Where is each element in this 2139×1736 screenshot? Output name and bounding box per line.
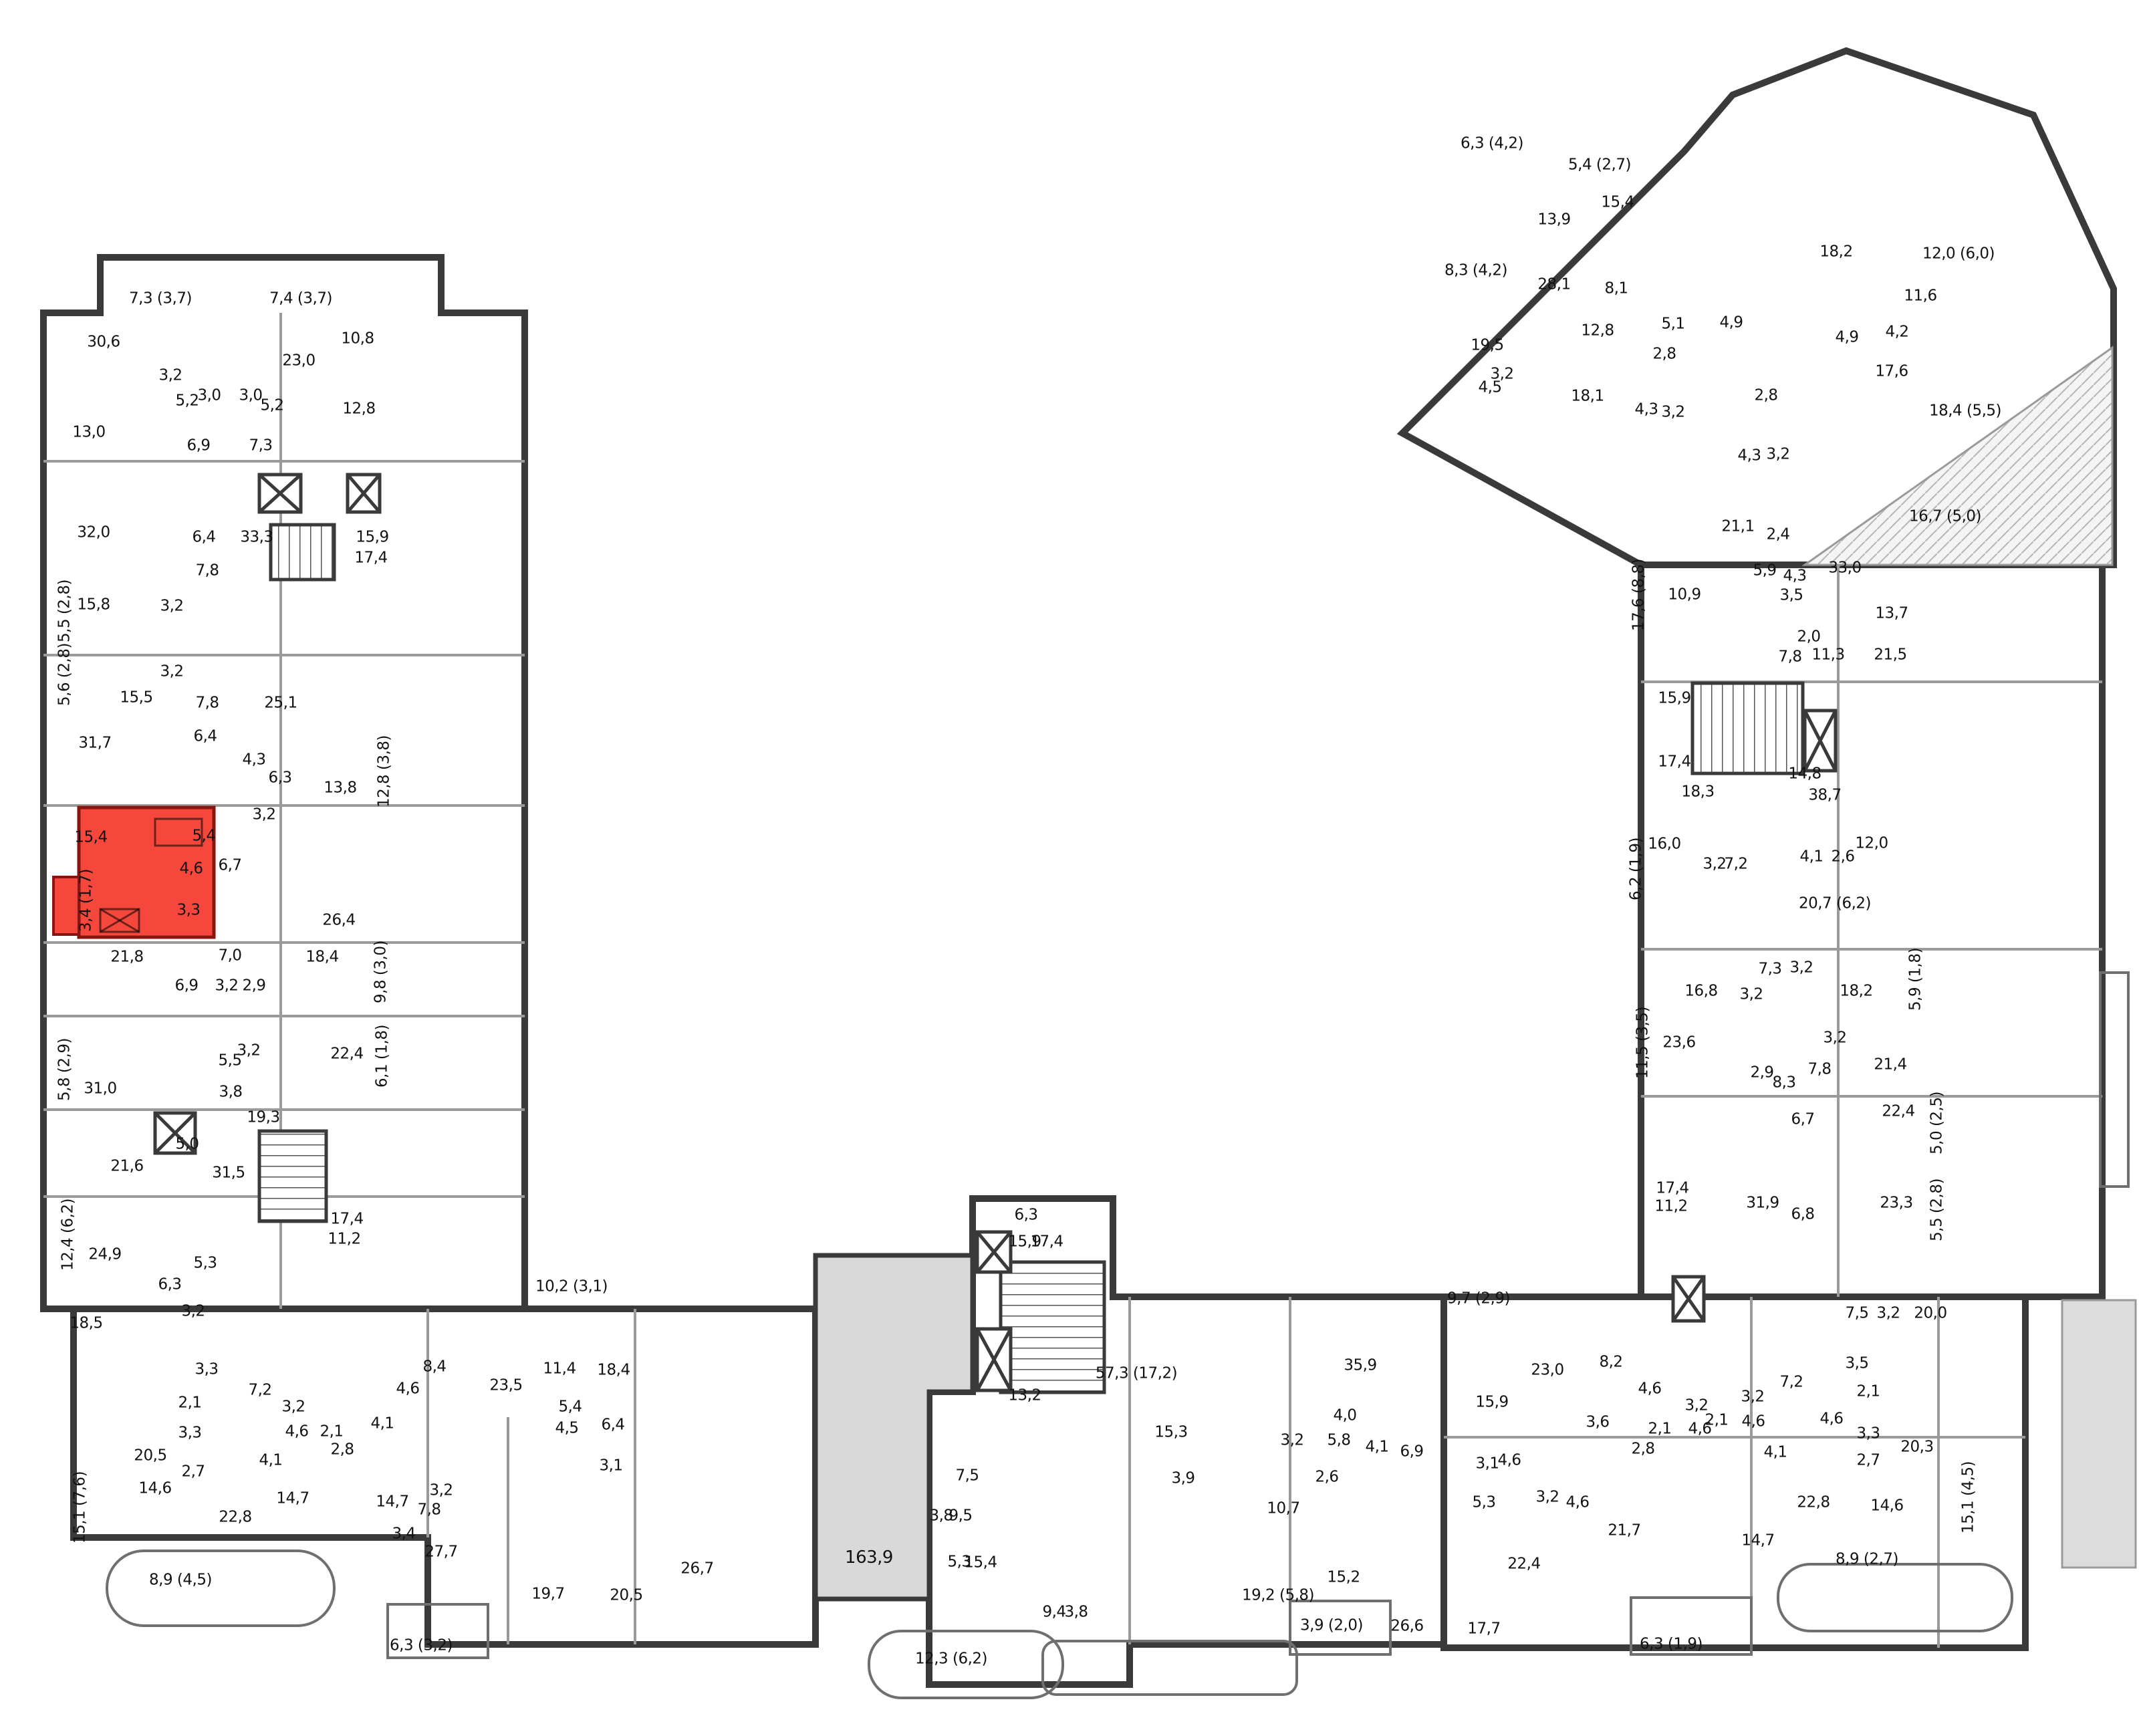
room-area-label: 15,8 [77, 598, 110, 613]
room-area-label: 12,8 (3,8) [377, 735, 392, 808]
room-area-label: 31,0 [84, 1082, 116, 1097]
room-area-label: 7,2 [1779, 1375, 1803, 1390]
room-area-label: 18,4 [597, 1363, 630, 1378]
room-area-label: 4,6 [179, 862, 203, 877]
room-area-label: 23,0 [1531, 1363, 1563, 1378]
room-area-label: 7,3 [1758, 962, 1781, 977]
room-area-label: 31,9 [1746, 1196, 1779, 1211]
room-area-label: 10,9 [1668, 588, 1701, 603]
room-area-label: 12,8 [342, 402, 375, 417]
room-area-label: 3,0 [239, 388, 262, 404]
room-area-label: 3,5 [1845, 1356, 1868, 1372]
room-area-label: 3,6 [1586, 1415, 1609, 1431]
room-area-label: 15,4 [74, 830, 107, 846]
room-area-label: 3,2 [215, 979, 238, 994]
room-area-label: 18,5 [70, 1316, 102, 1332]
room-area-label: 6,4 [192, 530, 215, 545]
room-area-label: 18,2 [1819, 245, 1852, 260]
room-area-label: 3,2 [181, 1304, 205, 1320]
room-area-label: 15,9 [1658, 691, 1690, 707]
room-area-label: 18,4 [305, 950, 338, 965]
room-area-label: 11,3 [1811, 648, 1844, 663]
room-area-label: 4,6 [1638, 1382, 1661, 1397]
room-area-label: 32,0 [77, 525, 110, 541]
room-area-label: 4,9 [1835, 330, 1858, 346]
room-area-label: 21,4 [1874, 1058, 1906, 1073]
room-area-label: 6,3 [268, 771, 291, 786]
room-area-label: 20,5 [610, 1588, 642, 1604]
room-area-label: 6,3 [158, 1277, 181, 1293]
room-area-label: 3,2 [1739, 987, 1763, 1003]
room-area-label: 15,1 (7,6) [73, 1471, 88, 1543]
room-area-label: 13,8 [324, 781, 356, 796]
room-area-label: 5,9 (1,8) [1908, 948, 1924, 1011]
room-area-label: 2,8 [330, 1443, 354, 1458]
room-area-label: 3,0 [197, 388, 221, 404]
room-area-label: 35,9 [1344, 1358, 1376, 1374]
room-area-label: 4,1 [1763, 1445, 1787, 1461]
room-area-label: 27,7 [424, 1545, 457, 1560]
room-area-label: 4,1 [1799, 850, 1823, 865]
room-area-label: 10,2 (3,1) [535, 1279, 608, 1295]
room-area-label: 26,4 [322, 913, 355, 928]
room-area-label: 4,9 [1719, 316, 1743, 331]
room-area-label: 7,5 [1845, 1306, 1868, 1322]
room-area-label: 23,5 [489, 1378, 522, 1394]
room-area-label: 12,8 [1581, 324, 1614, 339]
room-area-label: 26,6 [1390, 1619, 1423, 1634]
room-area-label: 17,4 [1656, 1181, 1688, 1197]
room-area-label: 4,1 [370, 1416, 394, 1432]
room-area-label: 31,7 [78, 736, 111, 751]
room-area-label: 6,3 (3,2) [390, 1638, 453, 1654]
room-area-label: 2,9 [242, 979, 265, 994]
room-area-label: 11,2 [328, 1232, 360, 1247]
room-area-label: 4,6 [285, 1424, 308, 1440]
room-area-label: 23,3 [1880, 1196, 1912, 1211]
room-area-label: 3,2 [158, 368, 182, 384]
room-area-label: 14,8 [1788, 767, 1821, 782]
room-area-label: 19,5 [1471, 338, 1503, 354]
room-area-label: 21,8 [110, 950, 143, 965]
room-area-label: 16,7 (5,0) [1909, 509, 1981, 525]
room-area-label: 4,0 [1333, 1408, 1356, 1424]
room-area-label: 3,1 [1475, 1457, 1499, 1472]
room-area-label: 9,4 [1042, 1605, 1065, 1620]
room-area-label: 15,4 [1601, 195, 1634, 211]
room-area-label: 4,6 [1497, 1453, 1521, 1469]
room-area-label: 23,6 [1662, 1035, 1695, 1051]
room-area-label: 8,9 (4,5) [149, 1573, 212, 1588]
room-area-label: 4,3 [242, 753, 265, 768]
room-area-label: 6,3 (1,9) [1640, 1637, 1703, 1652]
room-area-label: 3,2 [252, 808, 275, 823]
room-area-label: 24,9 [88, 1247, 121, 1263]
room-area-label: 15,4 [964, 1556, 997, 1571]
room-area-label: 11,5 (3,5) [1636, 1007, 1651, 1079]
room-area-label: 17,4 [330, 1212, 363, 1227]
room-area-label: 3,2 [1741, 1390, 1764, 1405]
room-area-label: 3,2 [281, 1400, 305, 1415]
room-area-label: 13,9 [1537, 213, 1570, 228]
room-area-label: 13,7 [1875, 606, 1908, 622]
room-area-label: 5,9 [1753, 564, 1776, 579]
room-area-label: 4,1 [1365, 1440, 1388, 1455]
room-area-label: 16,0 [1648, 837, 1680, 852]
room-area-label: 6,9 [1400, 1445, 1423, 1460]
room-area-label: 10,7 [1267, 1501, 1299, 1517]
room-area-label: 3,9 (2,0) [1300, 1618, 1363, 1634]
room-area-label: 4,2 [1885, 325, 1908, 340]
room-area-label: 20,7 (6,2) [1799, 896, 1871, 912]
room-area-label: 12,3 (6,2) [915, 1652, 987, 1667]
room-area-label: 18,3 [1681, 785, 1714, 800]
room-area-label: 2,9 [1750, 1066, 1773, 1081]
room-area-label: 19,3 [247, 1110, 279, 1126]
room-area-label: 12,0 (6,0) [1922, 247, 1995, 262]
room-area-label: 22,4 [1882, 1104, 1914, 1120]
room-area-label: 2,1 [320, 1424, 343, 1440]
room-area-label: 4,6 [1565, 1495, 1589, 1511]
room-area-label: 33,3 [240, 530, 273, 545]
room-area-label: 7,8 [417, 1503, 441, 1518]
room-area-label: 22,4 [1507, 1557, 1540, 1572]
room-area-label: 2,8 [1631, 1442, 1654, 1457]
room-area-label: 18,4 (5,5) [1929, 404, 2001, 419]
room-area-label: 25,1 [264, 696, 297, 711]
room-area-label: 3,2 [1280, 1433, 1303, 1449]
room-area-label: 5,0 (2,5) [1930, 1092, 1945, 1154]
room-area-label: 2,0 [1797, 630, 1820, 645]
room-area-label: 8,1 [1604, 281, 1628, 297]
room-area-label: 3,5 [1779, 588, 1803, 604]
room-area-label: 19,7 [531, 1587, 564, 1602]
room-area-label: 7,2 [1724, 857, 1747, 872]
room-area-label: 8,9 (2,7) [1836, 1552, 1898, 1568]
room-area-label: 3,8 [219, 1085, 242, 1100]
room-area-label: 5,8 (2,9) [57, 1038, 73, 1101]
room-area-label: 21,6 [110, 1159, 143, 1174]
room-area-label: 2,7 [1856, 1453, 1880, 1469]
room-area-label: 28,1 [1537, 277, 1570, 293]
room-area-label: 9,8 (3,0) [374, 941, 389, 1003]
room-area-label: 7,4 (3,7) [269, 291, 332, 307]
room-area-label: 11,2 [1654, 1199, 1687, 1215]
room-area-label: 14,6 [138, 1481, 171, 1497]
room-area-label: 3,2 [1823, 1031, 1846, 1046]
room-area-label: 9,7 (2,9) [1447, 1291, 1510, 1307]
room-area-label: 38,7 [1808, 788, 1841, 803]
room-area-label: 6,3 (4,2) [1461, 136, 1523, 152]
floor-plan: 7,3 (3,7)7,4 (3,7)30,63,25,23,03,05,223,… [0, 0, 2139, 1736]
room-area-label: 17,4 [1030, 1235, 1063, 1250]
room-area-label: 23,0 [282, 354, 315, 369]
room-area-label: 6,2 (1,9) [1629, 838, 1644, 900]
room-area-label: 8,2 [1599, 1355, 1622, 1370]
room-area-label: 5,1 [1661, 317, 1684, 332]
room-area-label: 7,3 [249, 439, 272, 454]
room-area-label: 3,9 [1171, 1471, 1194, 1487]
room-area-label: 7,2 [248, 1383, 271, 1398]
room-area-label: 3,3 [195, 1362, 218, 1378]
room-area-label: 13,0 [72, 425, 105, 441]
room-area-label: 163,9 [845, 1549, 893, 1566]
room-area-label: 10,8 [341, 332, 374, 347]
room-area-label: 3,3 [178, 1426, 201, 1441]
room-area-label: 30,6 [87, 335, 120, 350]
room-area-label: 5,4 [192, 829, 215, 844]
room-area-label: 17,6 (8,8) [1632, 559, 1647, 631]
room-area-label: 15,9 [1475, 1395, 1508, 1410]
room-area-label: 2,6 [1831, 850, 1854, 865]
room-area-label: 17,7 [1467, 1622, 1500, 1637]
room-area-label: 15,5 [120, 691, 152, 706]
room-area-label: 7,3 (3,7) [129, 291, 192, 307]
room-area-label: 4,1 [259, 1453, 282, 1469]
room-area-label: 3,2 [1535, 1490, 1559, 1505]
room-area-label: 14,7 [276, 1491, 309, 1507]
room-area-label: 3,2 [1661, 405, 1684, 420]
room-area-label: 6,3 [1014, 1208, 1037, 1223]
room-area-label: 17,6 [1875, 364, 1908, 380]
room-area-label: 3,1 [599, 1459, 622, 1474]
room-area-label: 6,9 [174, 979, 198, 994]
room-area-label: 4,6 [1819, 1412, 1843, 1427]
room-area-label: 3,2 [1789, 961, 1813, 976]
room-area-label: 5,5 (2,8) [1930, 1179, 1945, 1241]
room-area-label: 8,4 [422, 1360, 446, 1375]
room-area-label: 7,8 [1807, 1062, 1831, 1078]
room-area-label: 5,3 [193, 1256, 217, 1271]
room-area-label: 18,2 [1840, 984, 1872, 999]
room-area-label: 3,2 [1876, 1306, 1900, 1322]
room-area-label: 12,4 (6,2) [61, 1199, 76, 1271]
room-area-label: 4,5 [555, 1421, 578, 1437]
room-area-label: 15,2 [1327, 1570, 1360, 1586]
room-area-label: 7,5 [955, 1469, 979, 1484]
room-area-label: 21,5 [1874, 648, 1906, 663]
room-area-label: 21,7 [1608, 1523, 1640, 1539]
room-area-label: 5,5 (2,8) [57, 580, 73, 642]
room-area-label: 13,2 [1008, 1388, 1041, 1404]
room-area-label: 8,3 [1772, 1076, 1795, 1091]
room-area-label: 6,1 (1,8) [375, 1025, 390, 1088]
room-area-label: 11,6 [1904, 289, 1936, 304]
room-area-label: 31,5 [212, 1166, 245, 1181]
room-area-label: 15,9 [356, 530, 388, 545]
room-area-label: 3,2 [429, 1483, 453, 1499]
room-area-label: 2,1 [1705, 1413, 1728, 1429]
room-area-label: 14,6 [1870, 1499, 1903, 1514]
room-area-label: 2,1 [1856, 1384, 1880, 1400]
room-area-label: 12,0 [1855, 836, 1888, 852]
room-area-label: 4,3 [1737, 449, 1761, 464]
room-area-label: 5,5 [218, 1053, 241, 1069]
room-area-label: 4,3 [1634, 402, 1658, 418]
room-area-label: 21,1 [1721, 519, 1754, 535]
room-area-label: 3,8 [1064, 1605, 1088, 1620]
room-area-label: 20,5 [134, 1449, 166, 1464]
room-area-label: 3,3 [176, 903, 200, 918]
room-area-label: 8,3 (4,2) [1444, 263, 1507, 279]
room-labels-layer: 7,3 (3,7)7,4 (3,7)30,63,25,23,03,05,223,… [0, 0, 2139, 1736]
room-area-label: 5,3 [1472, 1495, 1495, 1511]
room-area-label: 5,4 [558, 1400, 582, 1415]
room-area-label: 22,8 [219, 1510, 251, 1525]
room-area-label: 2,7 [181, 1465, 205, 1480]
room-area-label: 20,3 [1900, 1440, 1933, 1455]
room-area-label: 5,6 (2,8) [57, 643, 73, 706]
room-area-label: 4,6 [1741, 1414, 1765, 1430]
room-area-label: 2,4 [1766, 527, 1789, 543]
room-area-label: 15,3 [1154, 1425, 1187, 1441]
room-area-label: 6,8 [1791, 1207, 1814, 1223]
room-area-label: 3,8 [929, 1509, 953, 1524]
room-area-label: 18,1 [1571, 389, 1604, 404]
room-area-label: 7,8 [195, 696, 219, 711]
room-area-label: 17,4 [1658, 755, 1690, 770]
room-area-label: 3,3 [1856, 1427, 1880, 1442]
room-area-label: 16,8 [1684, 984, 1717, 999]
room-area-label: 3,2 [160, 664, 183, 680]
room-area-label: 6,4 [193, 729, 217, 745]
room-area-label: 5,8 [1327, 1433, 1350, 1449]
room-area-label: 7,8 [195, 564, 219, 579]
room-area-label: 14,7 [1741, 1533, 1774, 1549]
room-area-label: 17,4 [354, 551, 387, 566]
room-area-label: 2,8 [1652, 347, 1676, 362]
room-area-label: 57,3 (17,2) [1096, 1366, 1177, 1382]
room-area-label: 5,0 [175, 1137, 199, 1152]
room-area-label: 33,0 [1828, 561, 1861, 576]
room-area-label: 4,3 [1783, 569, 1806, 584]
room-area-label: 22,4 [330, 1047, 363, 1062]
room-area-label: 2,8 [1754, 388, 1777, 404]
room-area-label: 5,4 (2,7) [1568, 158, 1631, 173]
room-area-label: 26,7 [680, 1562, 713, 1577]
room-area-label: 20,0 [1914, 1306, 1946, 1322]
room-area-label: 5,2 [175, 394, 199, 409]
room-area-label: 2,1 [178, 1396, 201, 1411]
room-area-label: 4,6 [396, 1382, 419, 1397]
room-area-label: 2,1 [1648, 1422, 1671, 1437]
room-area-label: 22,8 [1797, 1495, 1830, 1511]
room-area-label: 4,5 [1478, 380, 1501, 396]
room-area-label: 14,7 [376, 1495, 408, 1510]
room-area-label: 3,2 [160, 599, 183, 614]
room-area-label: 7,0 [218, 949, 241, 964]
room-area-label: 3,4 [392, 1527, 415, 1542]
room-area-label: 2,6 [1315, 1470, 1338, 1485]
room-area-label: 6,4 [601, 1418, 624, 1433]
room-area-label: 6,7 [218, 858, 241, 874]
room-area-label: 19,2 (5,8) [1242, 1588, 1314, 1604]
room-area-label: 7,8 [1778, 650, 1801, 665]
room-area-label: 3,2 [1703, 857, 1726, 872]
room-area-label: 6,9 [186, 439, 210, 454]
room-area-label: 15,1 (4,5) [1961, 1461, 1977, 1533]
room-area-label: 6,7 [1791, 1112, 1814, 1128]
room-area-label: 5,2 [260, 398, 283, 414]
room-area-label: 11,4 [543, 1362, 576, 1377]
room-area-label: 3,4 (1,7) [79, 869, 94, 932]
room-area-label: 3,2 [1766, 447, 1789, 463]
